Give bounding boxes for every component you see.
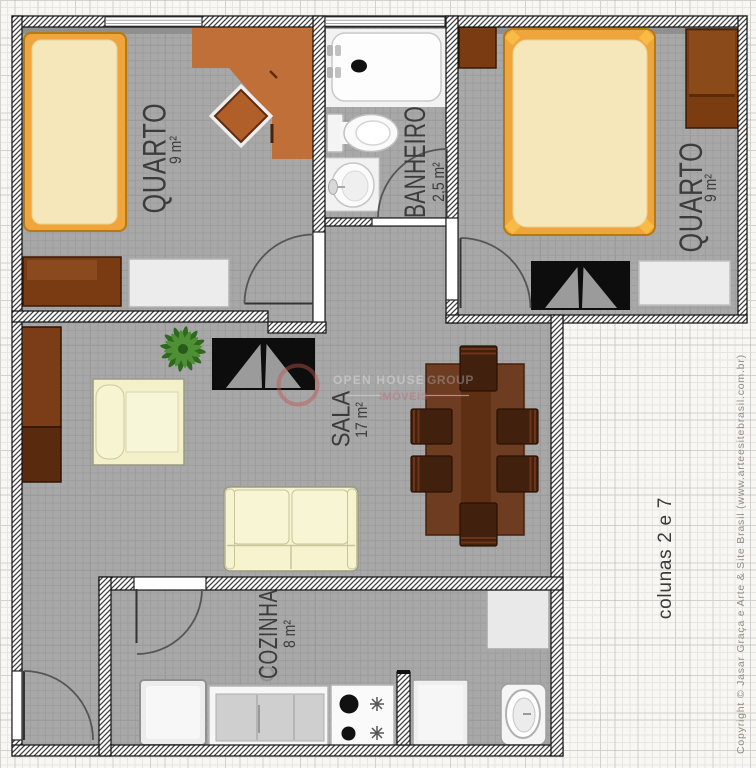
svg-text:9 m²: 9 m²: [702, 174, 720, 202]
svg-text:2,5 m²: 2,5 m²: [430, 162, 448, 202]
svg-text:BANHEIRO: BANHEIRO: [400, 106, 432, 218]
svg-text:COZINHA: COZINHA: [254, 589, 282, 679]
svg-text:8 m²: 8 m²: [281, 620, 299, 648]
svg-text:9 m²: 9 m²: [167, 136, 185, 164]
svg-text:GROUP: GROUP: [427, 373, 474, 387]
svg-text:OPEN HOUSE: OPEN HOUSE: [333, 373, 425, 387]
svg-text:colunas 2 e 7: colunas 2 e 7: [655, 497, 676, 619]
svg-text:SALA: SALA: [328, 391, 356, 447]
svg-text:17 m²: 17 m²: [353, 402, 371, 438]
svg-text:Copyright © Jasar Graça e Arte: Copyright © Jasar Graça e Arte & Site Br…: [735, 354, 747, 754]
svg-text:IMÓVEIS: IMÓVEIS: [379, 390, 428, 403]
